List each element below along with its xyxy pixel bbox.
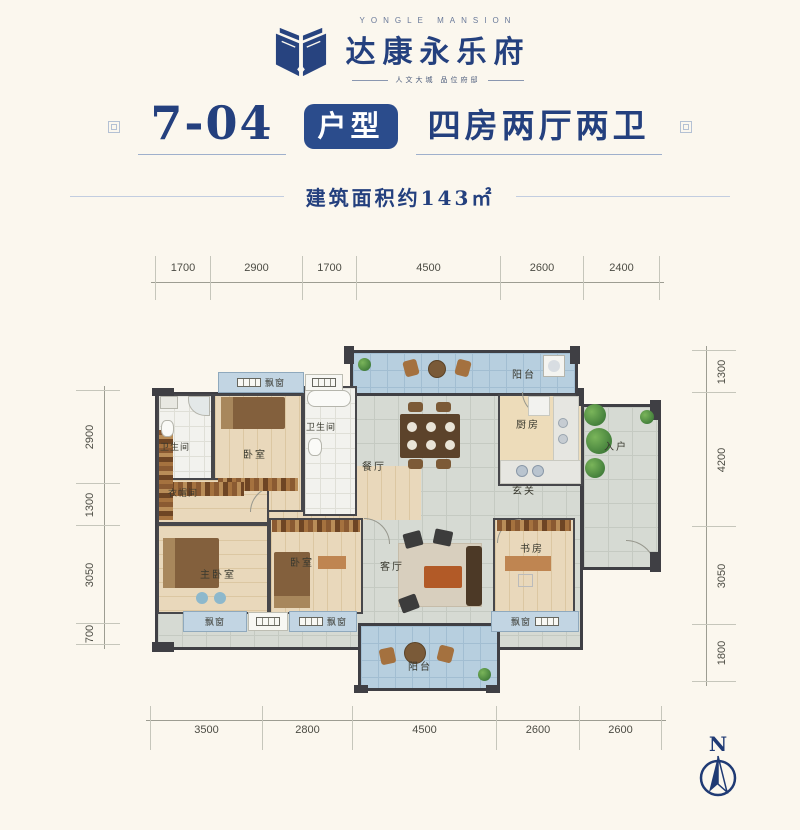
wall-block [152, 642, 174, 652]
study-chair [518, 574, 533, 587]
window-symbol-icon [299, 617, 323, 626]
label-master-bedroom: 主卧室 [200, 566, 236, 581]
dim-value: 1800 [716, 641, 728, 665]
brand-header: YONGLE MANSION 达康永乐府 人文大城 品位府邸 [0, 16, 800, 85]
dim-value: 3500 [151, 724, 262, 736]
window-symbol-icon [535, 617, 559, 626]
window-band-top [305, 374, 343, 391]
bay-window-label: 飘窗 [265, 376, 285, 389]
wall-block [650, 552, 661, 572]
dim-value: 2400 [584, 262, 659, 274]
bay-window-bedroom3: 飘窗 [289, 611, 357, 632]
study-bookshelf [497, 520, 571, 531]
brand-name-cn: 达康永乐府 [346, 27, 531, 71]
compass-icon [696, 754, 740, 798]
label-living: 客厅 [380, 558, 404, 573]
washing-machine [543, 355, 565, 377]
dining-chair [408, 402, 423, 412]
unit-number: 7-04 [138, 100, 285, 155]
dim-value: 1700 [156, 262, 210, 274]
plant-icon [358, 358, 371, 371]
decor-bowl [196, 592, 208, 604]
compass: N [694, 734, 742, 803]
plant-icon [478, 668, 491, 681]
stove-burner [558, 434, 568, 444]
window-symbol-icon [256, 617, 280, 626]
sink [160, 396, 178, 409]
dim-value: 2600 [580, 724, 661, 736]
label-bathroom-1: 卫生间 [160, 440, 190, 453]
balcony-table [428, 360, 446, 378]
label-study: 书房 [520, 540, 544, 555]
dim-value: 3050 [716, 563, 728, 587]
label-bedroom-3: 卧室 [290, 554, 314, 569]
wall-block [152, 388, 174, 396]
label-hall: 玄关 [512, 482, 536, 497]
window-symbol-icon [237, 378, 261, 387]
bed-pillows [221, 397, 233, 429]
bed-pillows [274, 596, 310, 608]
wall-block [486, 685, 500, 693]
area-line-right [516, 196, 730, 197]
wall-block [570, 346, 580, 364]
dimension-left: 2900 1300 3050 700 [76, 390, 120, 645]
dim-value: 1300 [716, 359, 728, 383]
layout-description: 四房两厅两卫 [416, 109, 662, 155]
window-symbol-icon [312, 378, 336, 387]
tagline-text: 人文大城 品位府邸 [396, 75, 481, 85]
compass-north-label: N [694, 734, 742, 754]
decor-bowl [214, 592, 226, 604]
dim-value: 700 [84, 625, 96, 643]
label-dining: 餐厅 [362, 458, 386, 473]
label-balcony-top: 阳台 [512, 366, 536, 381]
label-cloakroom: 衣帽间 [168, 486, 198, 499]
bay-window-top: 飘窗 [218, 372, 304, 393]
dim-value: 2900 [211, 262, 302, 274]
bed-pillows [163, 538, 175, 588]
area-line-left [70, 196, 284, 197]
tagline-line-left [352, 80, 388, 81]
ornament-left-icon [108, 121, 120, 133]
dim-value: 3050 [84, 562, 96, 586]
dinner-plates [407, 422, 417, 432]
dining-chair [436, 459, 451, 469]
unit-title: 7-04 户型 四房两厅两卫 [0, 100, 800, 155]
wall-block [344, 346, 354, 364]
toilet [308, 438, 322, 456]
bedroom3-desk [318, 556, 346, 569]
bay-window-label: 飘窗 [327, 615, 347, 628]
coffee-table [424, 566, 462, 588]
floorplan-page: YONGLE MANSION 达康永乐府 人文大城 品位府邸 7-04 户型 四… [0, 0, 800, 830]
dim-value: 4500 [357, 262, 500, 274]
dining-table [400, 414, 460, 458]
dimension-top: 1700 2900 1700 4500 2600 2400 [155, 256, 660, 300]
bedroom3-wardrobe [272, 520, 360, 532]
dining-chair [436, 402, 451, 412]
dim-value: 2600 [501, 262, 583, 274]
kitchen-sink [532, 465, 544, 477]
sofa [466, 546, 482, 606]
dim-value: 2600 [497, 724, 579, 736]
stove-burner [558, 418, 568, 428]
dimension-right: 1300 4200 3050 1800 [692, 350, 736, 682]
bay-window-study: 飘窗 [491, 611, 579, 632]
balcony-chair [379, 647, 397, 666]
fridge [528, 396, 550, 416]
window-band-bottom [248, 612, 288, 631]
area-note: 建筑面积约143㎡ [306, 182, 495, 211]
dimension-bottom: 3500 2800 4500 2600 2600 [150, 706, 662, 750]
label-kitchen: 厨房 [516, 416, 540, 431]
area-note-row: 建筑面积约143㎡ [70, 182, 730, 211]
unit-type-badge: 户型 [304, 104, 398, 149]
brand-tagline: 人文大城 品位府邸 [346, 75, 531, 85]
bay-window-label: 飘窗 [205, 615, 225, 628]
plant-icon [585, 458, 605, 478]
toilet [161, 420, 174, 437]
dim-value: 1300 [84, 492, 96, 516]
dim-value: 4200 [716, 447, 728, 471]
wall-block [354, 685, 368, 693]
bay-window-label: 飘窗 [511, 615, 531, 628]
ornament-right-icon [680, 121, 692, 133]
brand-logo-icon [270, 24, 332, 78]
bay-window-master: 飘窗 [183, 611, 247, 632]
study-desk [505, 556, 551, 571]
label-balcony-bottom: 阳台 [408, 658, 432, 673]
plant-icon [584, 404, 606, 426]
dim-value: 2800 [263, 724, 352, 736]
label-bathroom-2: 卫生间 [306, 420, 336, 433]
dim-value: 4500 [353, 724, 496, 736]
washer-drum [548, 360, 560, 372]
plant-icon [640, 410, 654, 424]
bedroom2-bed [221, 397, 285, 429]
bathtub [307, 390, 351, 407]
label-bedroom-2: 卧室 [243, 446, 267, 461]
dim-value: 1700 [303, 262, 356, 274]
dining-chair [408, 459, 423, 469]
brand-name-en: YONGLE MANSION [346, 16, 531, 25]
kitchen-sink [516, 465, 528, 477]
dim-value: 2900 [84, 425, 96, 449]
tagline-line-right [488, 80, 524, 81]
label-entry: 入户 [604, 438, 628, 453]
